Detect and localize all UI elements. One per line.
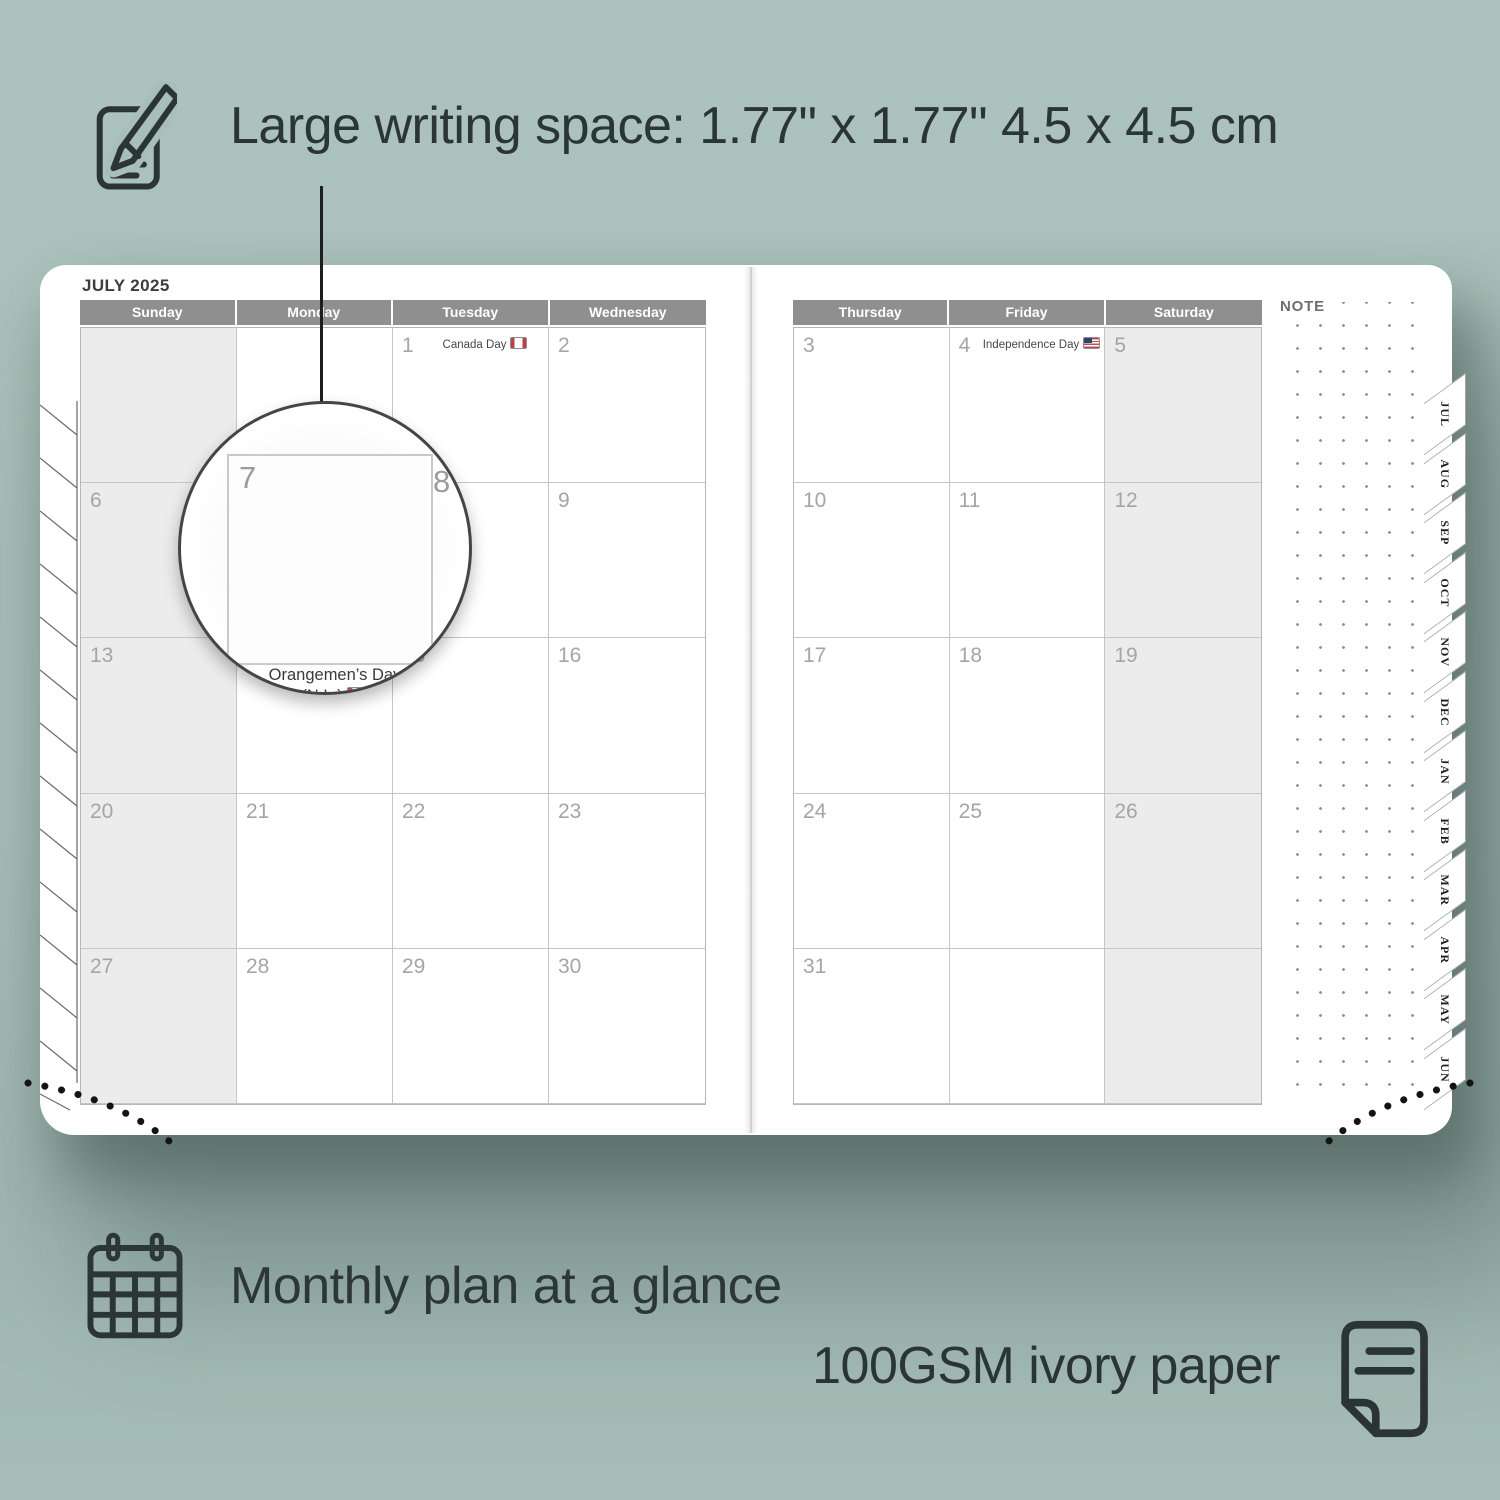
magnified-adjacent-day: 8 [433, 464, 450, 500]
callout-leader-line [320, 186, 323, 404]
magnified-holiday-label: Orangemen’s Day [241, 666, 429, 685]
corner-stitching [0, 0, 1500, 1500]
magnified-day-cell [227, 454, 433, 665]
magnifier-circle: 7 8 14 Orangemen’s Day (N.L.) [178, 401, 472, 695]
product-image: Large writing space: 1.77" x 1.77" 4.5 x… [0, 0, 1500, 1500]
magnified-day-number: 7 [239, 460, 256, 496]
